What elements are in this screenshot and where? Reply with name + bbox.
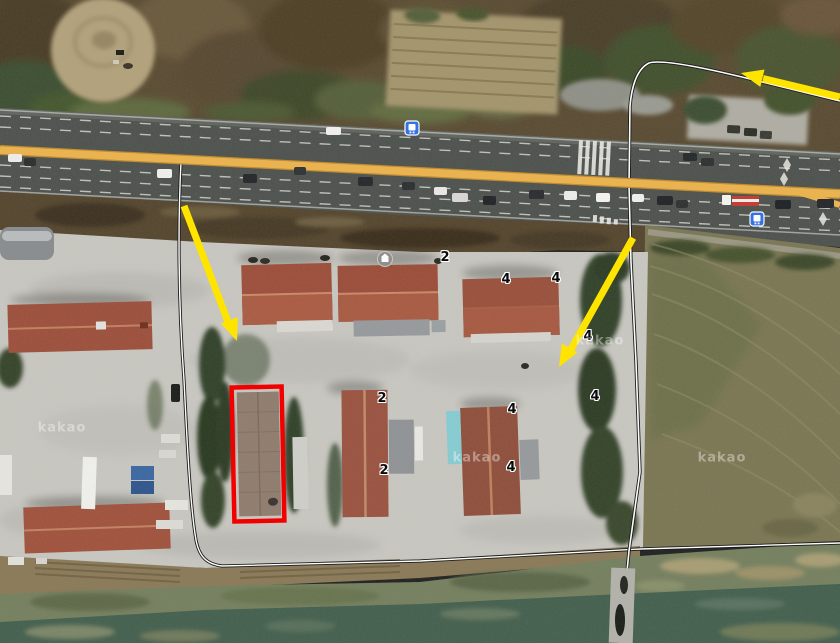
photo-grain: [0, 0, 840, 643]
map-canvas: [0, 0, 840, 643]
satellite-map[interactable]: 244442244 kakao kakao kakao kakao: [0, 0, 840, 643]
